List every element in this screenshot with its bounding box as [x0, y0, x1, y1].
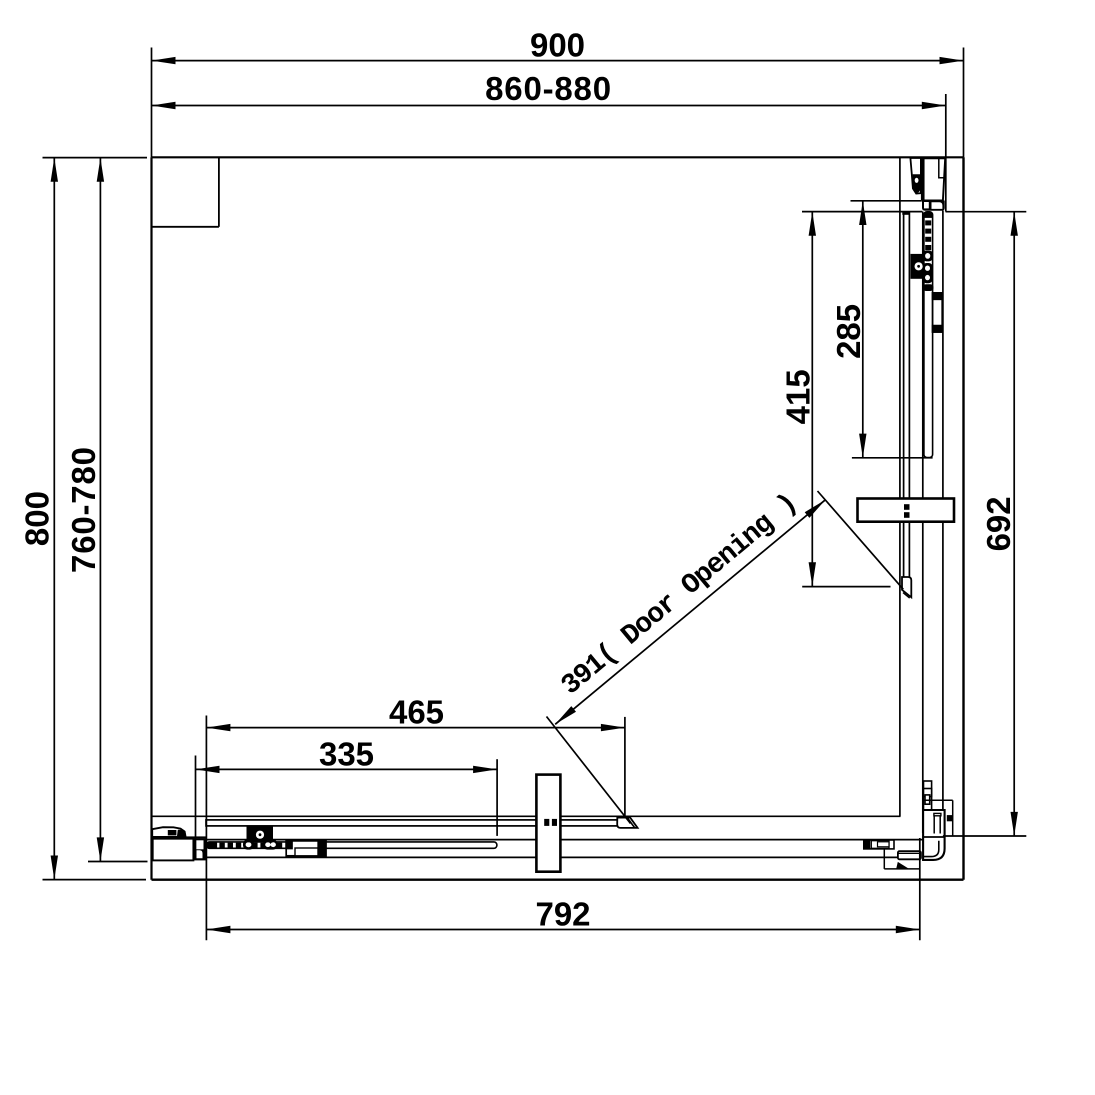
svg-text:860-880: 860-880 — [485, 70, 612, 107]
svg-text:692: 692 — [980, 496, 1017, 551]
svg-text:760-780: 760-780 — [65, 446, 102, 573]
svg-text:792: 792 — [535, 895, 590, 932]
svg-text:285: 285 — [830, 304, 867, 359]
svg-text:800: 800 — [19, 491, 56, 546]
svg-text:465: 465 — [389, 694, 444, 731]
svg-text:335: 335 — [319, 735, 374, 772]
svg-text:900: 900 — [530, 27, 585, 64]
svg-text:415: 415 — [779, 369, 816, 424]
